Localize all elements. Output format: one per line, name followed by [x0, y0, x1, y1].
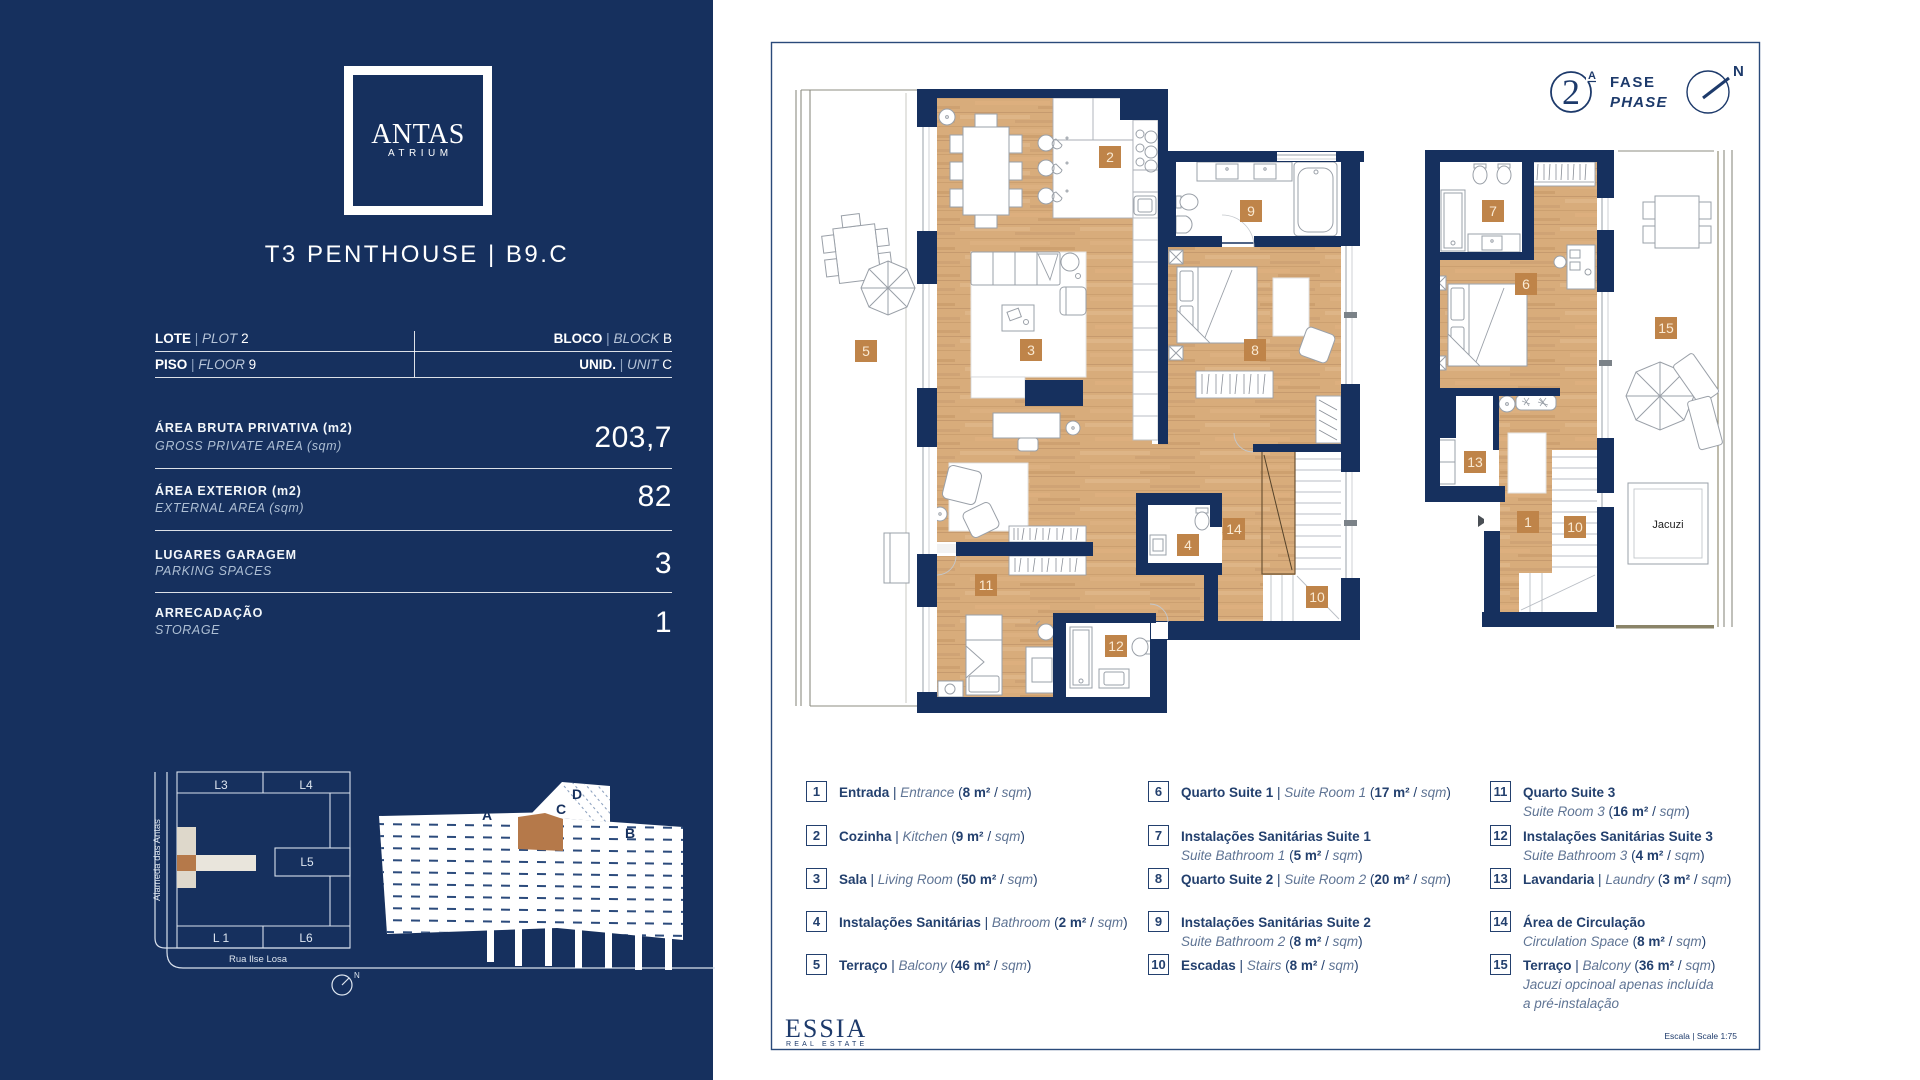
svg-text:A: A — [1588, 70, 1596, 82]
svg-text:L6: L6 — [299, 931, 313, 945]
svg-text:REAL ESTATE: REAL ESTATE — [786, 1041, 867, 1048]
svg-text:4: 4 — [1184, 537, 1192, 553]
svg-text:13: 13 — [1467, 454, 1483, 470]
svg-text:2: 2 — [1562, 72, 1580, 112]
svg-text:B: B — [625, 825, 635, 841]
svg-text:6: 6 — [1522, 276, 1530, 292]
svg-text:2: 2 — [1106, 149, 1114, 165]
svg-text:PHASE: PHASE — [1610, 94, 1668, 111]
svg-text:L3: L3 — [214, 778, 228, 792]
svg-text:10: 10 — [1567, 519, 1583, 535]
svg-text:Escala | Scale 1:75: Escala | Scale 1:75 — [1664, 1031, 1737, 1041]
svg-text:1: 1 — [1524, 514, 1532, 530]
svg-text:12: 12 — [1108, 638, 1124, 654]
svg-text:3: 3 — [1027, 342, 1035, 358]
svg-text:Jacuzi: Jacuzi — [1652, 519, 1683, 531]
svg-text:D: D — [572, 786, 582, 802]
svg-text:14: 14 — [1226, 521, 1242, 537]
svg-text:L5: L5 — [300, 855, 314, 869]
svg-text:L4: L4 — [299, 778, 313, 792]
svg-text:15: 15 — [1658, 320, 1674, 336]
svg-text:Rua Ilse Losa: Rua Ilse Losa — [229, 954, 288, 965]
svg-text:Alameda das Antas: Alameda das Antas — [152, 819, 163, 901]
svg-text:N: N — [1733, 63, 1744, 80]
svg-text:N: N — [354, 971, 360, 980]
svg-text:7: 7 — [1489, 203, 1497, 219]
svg-text:10: 10 — [1309, 589, 1325, 605]
svg-text:11: 11 — [979, 577, 994, 593]
svg-text:9: 9 — [1247, 203, 1255, 219]
svg-text:8: 8 — [1251, 342, 1259, 358]
svg-text:C: C — [556, 801, 566, 817]
svg-text:L 1: L 1 — [213, 931, 230, 945]
svg-text:ESSIA: ESSIA — [785, 1014, 867, 1043]
svg-text:FASE: FASE — [1610, 74, 1656, 91]
svg-text:5: 5 — [862, 343, 870, 359]
svg-text:A: A — [482, 807, 492, 823]
